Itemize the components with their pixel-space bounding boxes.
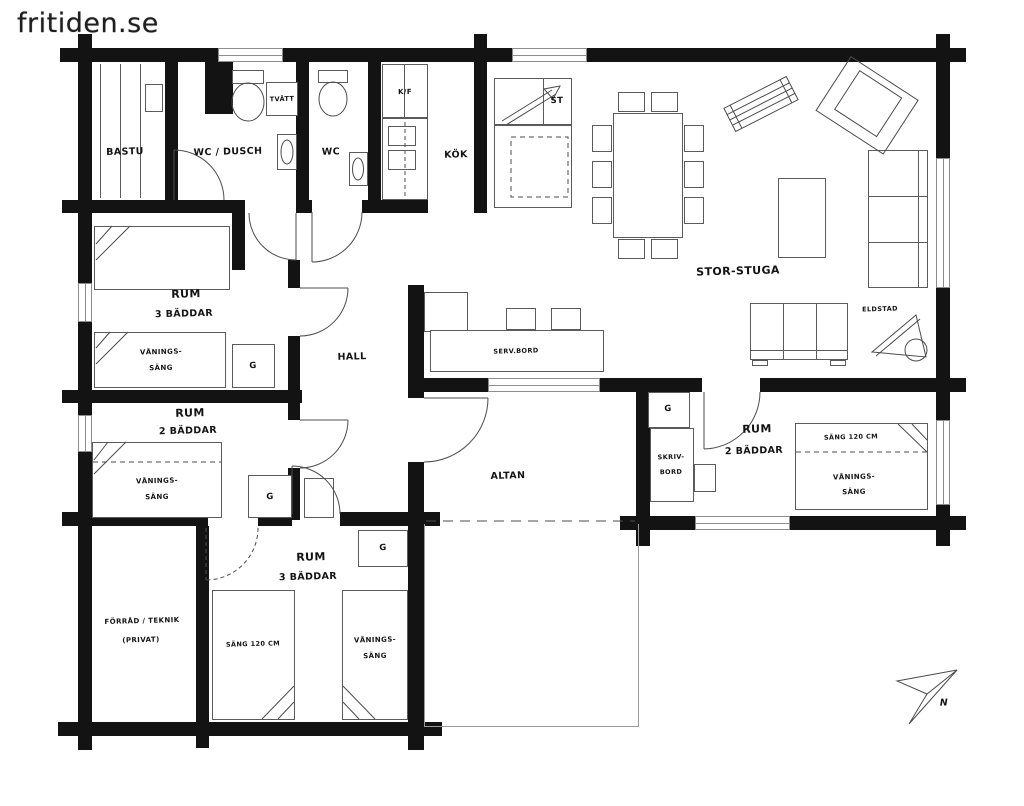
label-bed-120: SÄNG 120 CM — [226, 639, 280, 648]
bench-slat — [730, 88, 792, 120]
dining-chair — [592, 197, 612, 224]
window — [78, 283, 92, 322]
wall-rum4-top-2 — [760, 378, 966, 392]
sauna-bench-line — [100, 64, 101, 198]
label-bed-120: SÄNG 120 CM — [824, 432, 878, 441]
label-eldstad: ELDSTAD — [862, 305, 898, 314]
door-arc — [312, 212, 362, 262]
wall-right-2 — [936, 288, 950, 420]
room-label-rum1-beds: 3 BÄDDAR — [155, 308, 213, 321]
desk — [650, 428, 694, 502]
dining-chair — [592, 161, 612, 188]
log-stub — [62, 390, 78, 403]
counter-return — [424, 292, 468, 332]
wall-hall-west-1 — [288, 260, 300, 288]
north-arrow-icon — [897, 670, 957, 694]
window — [936, 158, 950, 288]
label-bunkbed: VÅNINGS- — [354, 635, 396, 644]
door-arc — [424, 398, 488, 462]
sauna-bench-line — [140, 64, 141, 198]
room-label-rum2: RUM — [175, 406, 205, 420]
room-label-rum4: RUM — [742, 422, 772, 436]
bench-slat — [733, 93, 795, 125]
label-bunkbed: VÅNINGS- — [833, 472, 875, 481]
armchair-seat — [835, 71, 902, 137]
label-tvatt: TVÄTT — [270, 95, 295, 104]
sauna-bench-line — [120, 64, 121, 198]
bench-edge — [780, 80, 792, 103]
sofa — [750, 303, 848, 360]
armchair-outline — [816, 57, 918, 154]
label-desk: BORD — [660, 468, 683, 477]
dining-chair — [684, 125, 704, 152]
label-st: ST — [551, 96, 564, 106]
door-arc — [300, 420, 348, 468]
sofa-back-line — [918, 150, 919, 288]
sofa-foot — [830, 360, 846, 366]
room-label-wc: WC — [322, 146, 341, 157]
label-wardrobe: G — [664, 404, 672, 414]
sofa-cushion-line — [783, 303, 784, 360]
door-arc — [249, 213, 296, 260]
armchair — [816, 57, 918, 154]
room-label-hall: HALL — [337, 351, 366, 363]
hall-cabinet — [304, 478, 334, 518]
sofa-cushion-line — [816, 303, 817, 360]
room-label-rum3-beds: 3 BÄDDAR — [279, 571, 337, 584]
bench-edge — [730, 105, 742, 128]
label-kf: K/F — [398, 88, 412, 96]
wall-bastu-east — [165, 62, 178, 200]
window — [936, 420, 950, 505]
wall-rum4-top-1 — [648, 378, 702, 392]
window — [512, 48, 587, 62]
label-wardrobe: G — [249, 361, 257, 371]
sink — [349, 152, 368, 186]
room-label-rum3: RUM — [296, 550, 326, 564]
log-stub — [62, 200, 78, 213]
wall-bottom-right-2 — [790, 516, 966, 530]
kitchen-sink — [388, 126, 416, 146]
sofa — [868, 150, 928, 288]
room-label-kok: KÖK — [444, 149, 468, 161]
label-bunkbed: VÅNINGS- — [140, 347, 182, 356]
room-label-rum1: RUM — [171, 287, 201, 301]
label-servbord: SERV.BORD — [493, 346, 538, 355]
wall-a-1 — [78, 200, 232, 213]
bed — [212, 590, 295, 720]
toilet-tank — [318, 70, 348, 83]
dining-chair — [684, 197, 704, 224]
sink — [277, 134, 297, 170]
wall-right-1 — [936, 34, 950, 158]
window — [78, 415, 92, 452]
wall-altan-top-1 — [410, 378, 488, 392]
fireplace-stove — [905, 339, 927, 361]
dining-chair — [651, 239, 678, 259]
log-stub — [62, 512, 78, 526]
wall-a-3 — [362, 200, 428, 213]
bed — [94, 226, 230, 290]
floor-plan: fritiden.se — [0, 0, 1024, 806]
room-label-storstuga: STOR-STUGA — [696, 263, 780, 278]
room-label-forrad-2: (PRIVAT) — [122, 636, 160, 645]
sauna-heater — [145, 84, 163, 112]
duct-column — [205, 62, 233, 114]
fireplace-edge — [876, 319, 920, 356]
room-label-bastu: BASTU — [106, 146, 144, 158]
slatted-bench — [724, 77, 798, 132]
window — [218, 48, 283, 62]
fireplace-hearth — [872, 315, 926, 357]
label-bunkbed: SÄNG — [149, 364, 173, 373]
sofa-bed — [494, 125, 572, 208]
toilet-tank — [232, 70, 264, 84]
north-arrow-tail — [909, 670, 957, 724]
coffee-table — [778, 178, 826, 258]
label-wardrobe: G — [266, 492, 274, 502]
label-bunkbed: SÄNG — [842, 488, 866, 497]
closet-divider — [543, 78, 544, 125]
label-bunkbed: SÄNG — [145, 493, 169, 502]
room-label-rum2-beds: 2 BÄDDAR — [159, 425, 217, 438]
sofa-foot — [752, 360, 768, 366]
desk-chair — [694, 464, 716, 492]
toilet-bowl — [319, 82, 347, 116]
label-desk: SKRIV- — [657, 453, 684, 462]
bunk-bed — [94, 332, 226, 388]
wall-a-2 — [296, 200, 312, 213]
wall-left-1 — [78, 34, 92, 283]
bench-outline — [724, 77, 798, 132]
label-wardrobe: G — [379, 543, 387, 553]
wall-bottom-left — [58, 722, 442, 736]
dining-chair — [618, 92, 645, 112]
room-label-rum4-beds: 2 BÄDDAR — [725, 445, 783, 458]
label-bunkbed: VÅNINGS- — [136, 476, 178, 485]
wall-forrad-east — [196, 526, 209, 748]
room-label-wc-dusch: WC / DUSCH — [193, 146, 262, 159]
bar-stool — [506, 308, 536, 330]
wall-hall-west-2 — [288, 336, 300, 420]
dining-chair — [618, 239, 645, 259]
dining-chair — [651, 92, 678, 112]
sofa-cushion-line — [868, 196, 928, 197]
bench-slat — [727, 83, 789, 115]
dining-chair — [592, 125, 612, 152]
label-bunkbed: SÄNG — [363, 652, 387, 661]
bar-stool — [551, 308, 581, 330]
room-label-altan: ALTAN — [490, 470, 525, 482]
door-arc — [704, 392, 760, 449]
wall-altan-west-2 — [408, 462, 424, 750]
wall-rum1-rum2 — [78, 390, 302, 403]
wall-wc-east — [368, 62, 381, 213]
door-arc — [300, 288, 348, 336]
dining-chair — [684, 161, 704, 188]
wall-kitchen-east — [474, 34, 487, 213]
door-arc-dashed — [206, 528, 258, 580]
open-deck — [424, 524, 639, 727]
north-label: N — [940, 697, 949, 708]
sofa-back-line — [750, 350, 848, 351]
kitchen-sink — [388, 150, 416, 170]
toilet-bowl — [232, 83, 264, 121]
wall-corridor — [232, 200, 245, 270]
window — [488, 378, 600, 392]
wall-left-3 — [78, 452, 92, 750]
window — [695, 516, 790, 530]
sofa-cushion-line — [868, 242, 928, 243]
dining-table — [613, 113, 683, 238]
room-label-forrad: FÖRRÅD / TEKNIK — [104, 616, 179, 626]
